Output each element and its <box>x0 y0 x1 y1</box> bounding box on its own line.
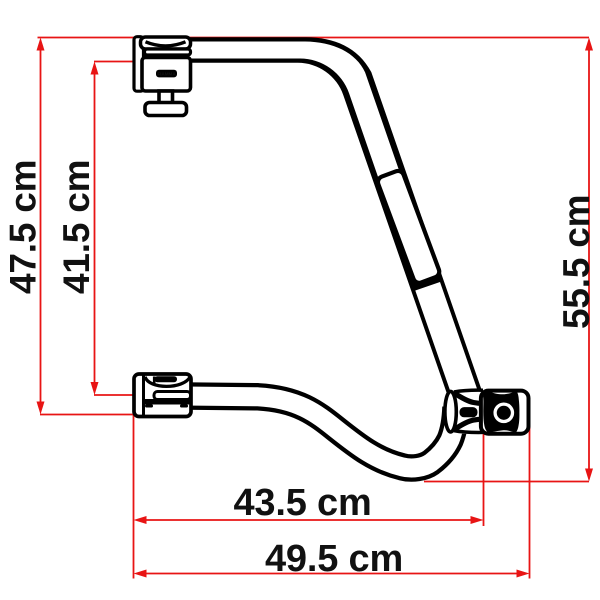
svg-text:41.5 cm: 41.5 cm <box>56 160 97 294</box>
svg-text:FIAMMA: FIAMMA <box>157 72 176 77</box>
svg-text:43.5 cm: 43.5 cm <box>234 482 372 524</box>
svg-text:47.5 cm: 47.5 cm <box>3 160 44 294</box>
svg-text:49.5 cm: 49.5 cm <box>265 538 403 580</box>
svg-text:55.5 cm: 55.5 cm <box>556 195 597 329</box>
